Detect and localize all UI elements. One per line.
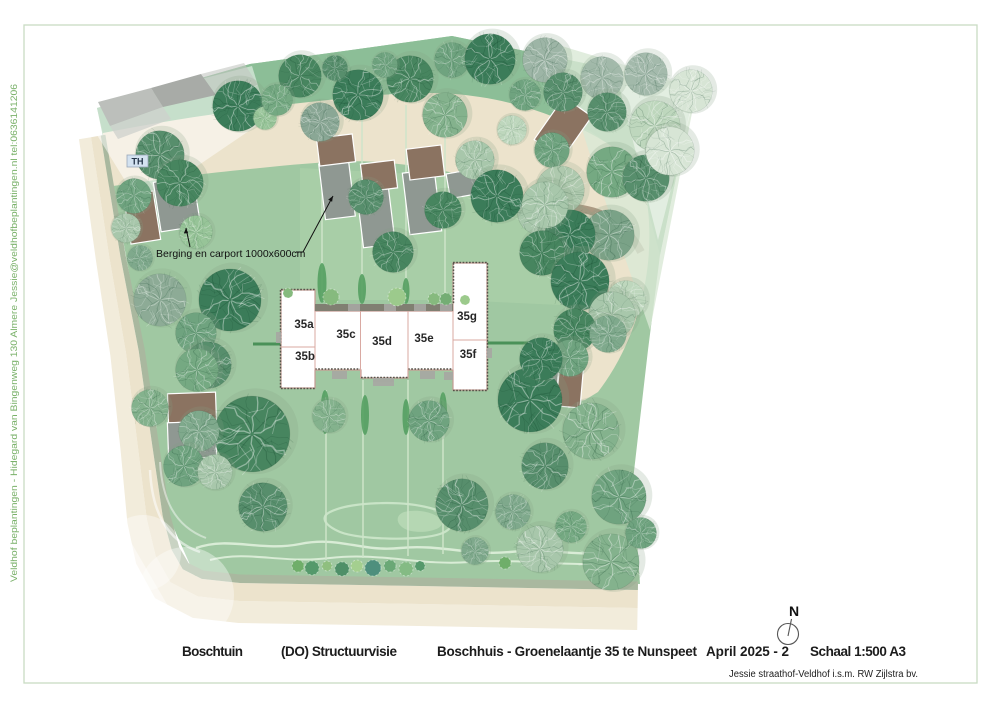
svg-text:Veldhof beplantingen - Hidegar: Veldhof beplantingen - Hidegard van Bing… (9, 84, 19, 582)
svg-text:Berging en carport 1000x600cm: Berging en carport 1000x600cm (156, 248, 306, 260)
svg-text:Jessie straathof-Veldhof i.s.m: Jessie straathof-Veldhof i.s.m. RW Zijls… (729, 669, 918, 680)
svg-text:35b: 35b (295, 351, 315, 363)
svg-text:N: N (789, 603, 799, 619)
svg-text:35d: 35d (372, 336, 392, 348)
svg-text:(DO) Structuurvisie: (DO) Structuurvisie (281, 644, 397, 659)
svg-text:35c: 35c (336, 329, 356, 341)
svg-text:35a: 35a (294, 319, 314, 331)
svg-text:TH: TH (132, 157, 144, 167)
svg-text:April 2025 - 2: April 2025 - 2 (706, 644, 789, 659)
svg-text:Schaal 1:500 A3: Schaal 1:500 A3 (810, 644, 906, 659)
svg-text:35e: 35e (414, 333, 433, 345)
svg-text:35g: 35g (457, 311, 477, 323)
svg-text:Boschhuis - Groenelaantje 35 t: Boschhuis - Groenelaantje 35 te Nunspeet (437, 644, 698, 659)
svg-text:35f: 35f (460, 349, 477, 361)
svg-text:Boschtuin: Boschtuin (182, 644, 243, 659)
